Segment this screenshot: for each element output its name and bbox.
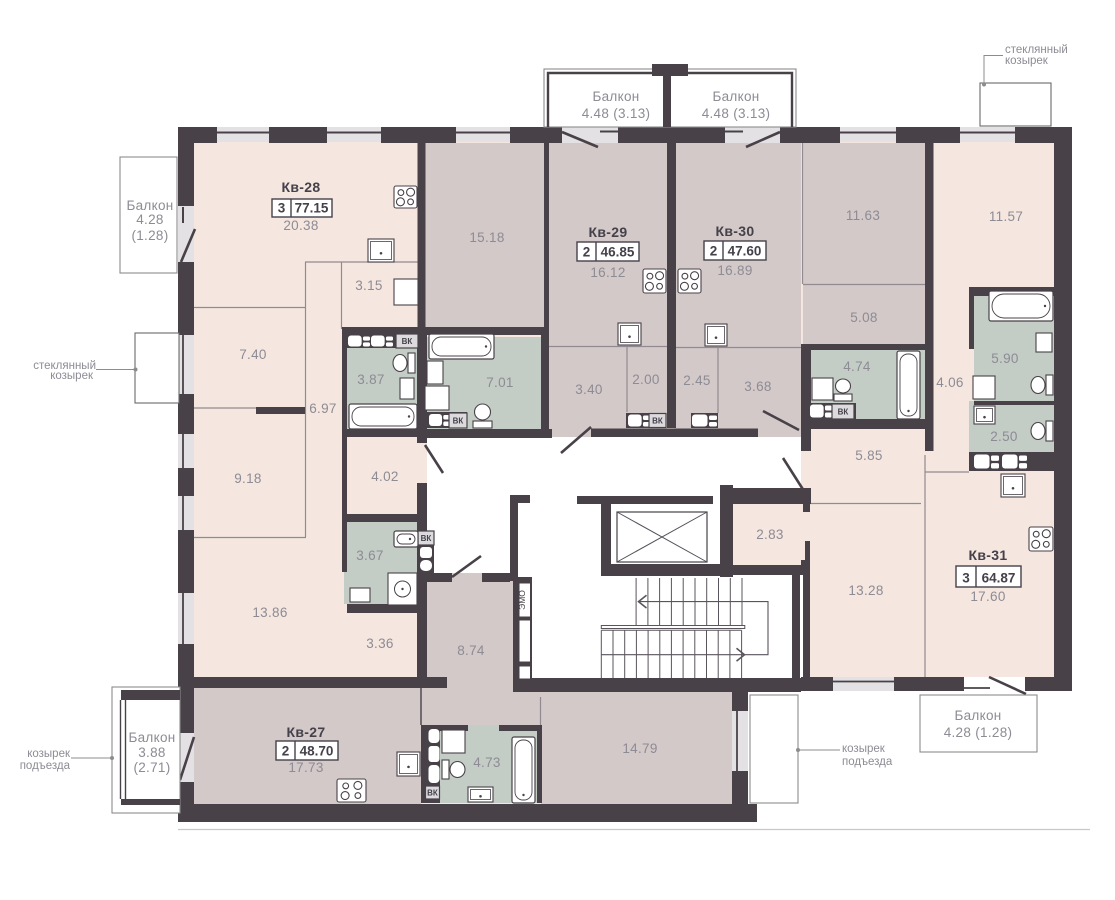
svg-text:5.85: 5.85 [855, 448, 882, 463]
svg-text:козырек: козырек [1005, 55, 1049, 67]
svg-text:Балкон: Балкон [126, 198, 173, 213]
svg-text:козырек: козырек [842, 743, 886, 755]
svg-text:8.74: 8.74 [457, 643, 485, 658]
svg-text:2.83: 2.83 [756, 527, 783, 542]
svg-text:Кв-30: Кв-30 [716, 223, 755, 239]
svg-text:ВК: ВК [838, 407, 849, 416]
svg-text:9.18: 9.18 [234, 471, 261, 486]
svg-text:15.18: 15.18 [469, 230, 504, 245]
svg-text:(1.28): (1.28) [131, 228, 168, 243]
svg-text:4.74: 4.74 [843, 359, 871, 374]
svg-text:Кв-31: Кв-31 [969, 547, 1008, 563]
svg-text:13.28: 13.28 [848, 583, 883, 598]
svg-text:4.28 (1.28): 4.28 (1.28) [944, 725, 1013, 740]
svg-text:2.00: 2.00 [632, 372, 659, 387]
svg-text:Кв-28: Кв-28 [282, 179, 321, 195]
svg-text:4.02: 4.02 [371, 469, 398, 484]
svg-text:46.85: 46.85 [601, 245, 635, 260]
svg-text:20.38: 20.38 [283, 218, 318, 233]
svg-text:77.15: 77.15 [295, 201, 329, 216]
svg-text:4.73: 4.73 [473, 755, 500, 770]
svg-text:4.06: 4.06 [936, 375, 963, 390]
svg-text:6.97: 6.97 [309, 401, 336, 416]
svg-text:3.87: 3.87 [357, 372, 384, 387]
svg-text:5.90: 5.90 [991, 351, 1018, 366]
svg-text:5.08: 5.08 [850, 310, 877, 325]
svg-text:ЭМО: ЭМО [517, 590, 527, 610]
svg-text:3.15: 3.15 [355, 278, 382, 293]
svg-text:3: 3 [962, 571, 970, 586]
svg-text:2: 2 [282, 744, 290, 759]
svg-text:64.87: 64.87 [982, 571, 1016, 586]
svg-text:11.57: 11.57 [989, 209, 1023, 224]
svg-text:3.88: 3.88 [138, 745, 165, 760]
svg-text:козырек: козырек [50, 370, 94, 382]
svg-text:ВК: ВК [453, 416, 464, 425]
svg-text:4.48 (3.13): 4.48 (3.13) [582, 106, 651, 121]
svg-text:козырек: козырек [27, 748, 71, 760]
svg-text:3: 3 [278, 201, 286, 216]
svg-text:17.60: 17.60 [970, 589, 1005, 604]
svg-text:(2.71): (2.71) [133, 760, 170, 775]
svg-text:17.73: 17.73 [288, 760, 323, 775]
svg-text:2.50: 2.50 [990, 429, 1017, 444]
svg-text:Балкон: Балкон [954, 708, 1001, 723]
svg-text:48.70: 48.70 [300, 744, 334, 759]
svg-text:2: 2 [710, 244, 718, 259]
svg-text:13.86: 13.86 [252, 605, 287, 620]
svg-text:ВК: ВК [421, 534, 432, 543]
svg-text:Балкон: Балкон [712, 89, 759, 104]
svg-text:14.79: 14.79 [622, 741, 657, 756]
svg-text:3.36: 3.36 [366, 636, 393, 651]
svg-text:Балкон: Балкон [128, 730, 175, 745]
svg-text:3.68: 3.68 [744, 379, 771, 394]
svg-text:47.60: 47.60 [728, 244, 762, 259]
svg-text:подъезда: подъезда [20, 760, 71, 772]
svg-text:4.28: 4.28 [136, 212, 163, 227]
svg-text:ВК: ВК [402, 337, 413, 346]
svg-text:4.48 (3.13): 4.48 (3.13) [702, 106, 771, 121]
svg-text:3.40: 3.40 [575, 382, 602, 397]
svg-text:2: 2 [583, 245, 591, 260]
svg-text:11.63: 11.63 [846, 208, 880, 223]
svg-text:Кв-27: Кв-27 [287, 724, 326, 740]
svg-text:16.12: 16.12 [590, 265, 625, 280]
svg-text:2.45: 2.45 [683, 373, 710, 388]
svg-text:16.89: 16.89 [717, 263, 752, 278]
svg-text:подъезда: подъезда [842, 756, 893, 768]
svg-text:3.67: 3.67 [356, 548, 383, 563]
svg-text:Балкон: Балкон [592, 89, 639, 104]
svg-text:Кв-29: Кв-29 [589, 224, 628, 240]
svg-text:ВК: ВК [652, 416, 663, 425]
svg-text:ВК: ВК [427, 788, 438, 797]
svg-text:7.01: 7.01 [486, 375, 513, 390]
svg-text:7.40: 7.40 [239, 347, 266, 362]
